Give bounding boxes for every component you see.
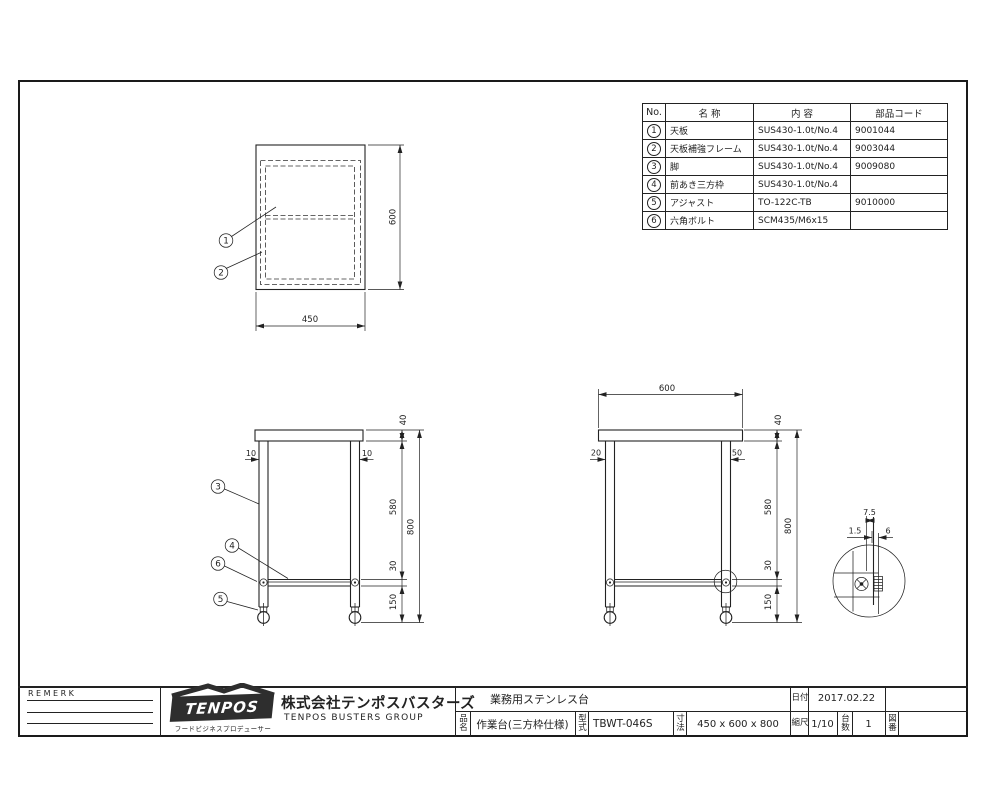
detail-indicator-circle [714, 570, 737, 593]
row-number: 6 [647, 214, 661, 228]
leader-2 [226, 252, 262, 269]
detail-dim-b: 1.5 [849, 527, 862, 536]
size-value: 450 x 600 x 800 [686, 711, 790, 737]
front-dim-height: 800 [407, 519, 417, 535]
front-dim-foot: 150 [389, 594, 399, 610]
detail-dim-c: 6 [885, 527, 890, 536]
col-code: 部品コード [851, 104, 948, 122]
row-number: 5 [647, 196, 661, 210]
drawing-no-value [898, 711, 968, 737]
plan-view: 1 2 450 600 [214, 145, 404, 331]
part-spec: SCM435/M6x15 [754, 212, 851, 230]
table-row: 3 脚 SUS430-1.0t/No.4 9009080 [643, 158, 948, 176]
company-group: TENPOS BUSTERS GROUP [284, 713, 424, 723]
balloon-5-number: 5 [218, 595, 224, 605]
part-code: 9003044 [851, 140, 948, 158]
detail-view: 7.5 1.5 6 [833, 508, 905, 617]
plan-dim-width: 450 [302, 315, 318, 325]
scale-value: 1/10 [808, 711, 837, 737]
side-dim-foot: 150 [764, 594, 774, 610]
parts-table: No. 名 称 内 容 部品コード 1 天板 SUS430-1.0t/No.4 … [642, 103, 948, 230]
part-code [851, 212, 948, 230]
side-dim-top: 40 [774, 415, 784, 426]
part-name: 前あき三方枠 [666, 176, 754, 194]
plan-tabletop-outline [256, 145, 365, 290]
balloon-1-number: 1 [223, 237, 229, 247]
remark-label: REMERK [28, 689, 76, 698]
row-number: 2 [647, 142, 661, 156]
qty-value: 1 [852, 711, 885, 737]
side-dim-inset-left: 20 [591, 449, 601, 458]
side-dim-leg: 580 [764, 499, 774, 515]
balloon-6-number: 6 [215, 560, 221, 570]
product-type: 業務用ステンレス台 [490, 686, 589, 711]
part-code: 9001044 [851, 122, 948, 140]
front-dim-inset-right: 10 [362, 449, 372, 458]
balloon-2-number: 2 [218, 269, 224, 279]
drawing-sheet: { "colors": {"line": "#222222", "backgro… [0, 0, 1000, 800]
detail-circle [833, 545, 905, 617]
part-name: アジャスト [666, 194, 754, 212]
part-spec: SUS430-1.0t/No.4 [754, 140, 851, 158]
table-row: 1 天板 SUS430-1.0t/No.4 9001044 [643, 122, 948, 140]
remark-line [27, 712, 153, 713]
leader-1 [232, 207, 277, 237]
side-dim-width: 600 [659, 384, 675, 394]
front-dim-frame: 30 [389, 561, 399, 572]
part-code: 9010000 [851, 194, 948, 212]
row-number: 4 [647, 178, 661, 192]
scale-label: 縮尺 [790, 711, 810, 737]
table-row: 2 天板補強フレーム SUS430-1.0t/No.4 9003044 [643, 140, 948, 158]
part-spec: SUS430-1.0t/No.4 [754, 122, 851, 140]
balloon-4-number: 4 [229, 542, 235, 552]
part-spec: SUS430-1.0t/No.4 [754, 176, 851, 194]
side-dim-height: 800 [784, 518, 794, 534]
side-dim-frame: 30 [764, 560, 774, 571]
model-value: TBWT-046S [593, 711, 653, 737]
date-label: 日付 [790, 686, 810, 711]
table-row: 6 六角ボルト SCM435/M6x15 [643, 212, 948, 230]
part-name: 脚 [666, 158, 754, 176]
row-number: 3 [647, 160, 661, 174]
tenpos-logo: TENPOS [170, 693, 275, 722]
front-tabletop [255, 430, 363, 441]
side-dim-inset-right: 50 [732, 449, 742, 458]
parts-table-header: No. 名 称 内 容 部品コード [643, 104, 948, 122]
front-dim-leg: 580 [389, 499, 399, 515]
col-name: 名 称 [666, 104, 754, 122]
front-dim-inset-left: 10 [246, 449, 256, 458]
detail-dim-a: 7.5 [863, 508, 876, 517]
col-no: No. [643, 104, 666, 122]
model-label: 型式 [575, 711, 590, 737]
table-row: 5 アジャスト TO-122C-TB 9010000 [643, 194, 948, 212]
plan-frame-outer [261, 161, 361, 285]
part-code: 9009080 [851, 158, 948, 176]
part-name: 六角ボルト [666, 212, 754, 230]
table-row: 4 前あき三方枠 SUS430-1.0t/No.4 [643, 176, 948, 194]
tenpos-logo-text: TENPOS [184, 697, 259, 718]
col-spec: 内 容 [754, 104, 851, 122]
part-code [851, 176, 948, 194]
date-value: 2017.02.22 [808, 686, 885, 711]
part-spec: SUS430-1.0t/No.4 [754, 158, 851, 176]
front-dim-top: 40 [399, 415, 409, 426]
side-view: 600 20 50 [590, 384, 802, 626]
part-name: 天板 [666, 122, 754, 140]
part-spec: TO-122C-TB [754, 194, 851, 212]
plan-frame-inner [266, 166, 355, 279]
balloon-3-number: 3 [215, 483, 221, 493]
product-name-value: 作業台(三方枠仕様) [470, 711, 575, 737]
remark-line [27, 700, 153, 701]
remark-line [27, 723, 153, 724]
part-name: 天板補強フレーム [666, 140, 754, 158]
row-number: 1 [647, 124, 661, 138]
company-name: 株式会社テンポスバスターズ [281, 692, 475, 713]
logo-subtitle: フードビジネスプロデューサー [166, 723, 280, 733]
front-view: 10 10 40 580 30 150 800 3 4 6 5 [211, 415, 424, 626]
side-tabletop [599, 430, 743, 441]
plan-dim-depth: 600 [389, 209, 399, 225]
